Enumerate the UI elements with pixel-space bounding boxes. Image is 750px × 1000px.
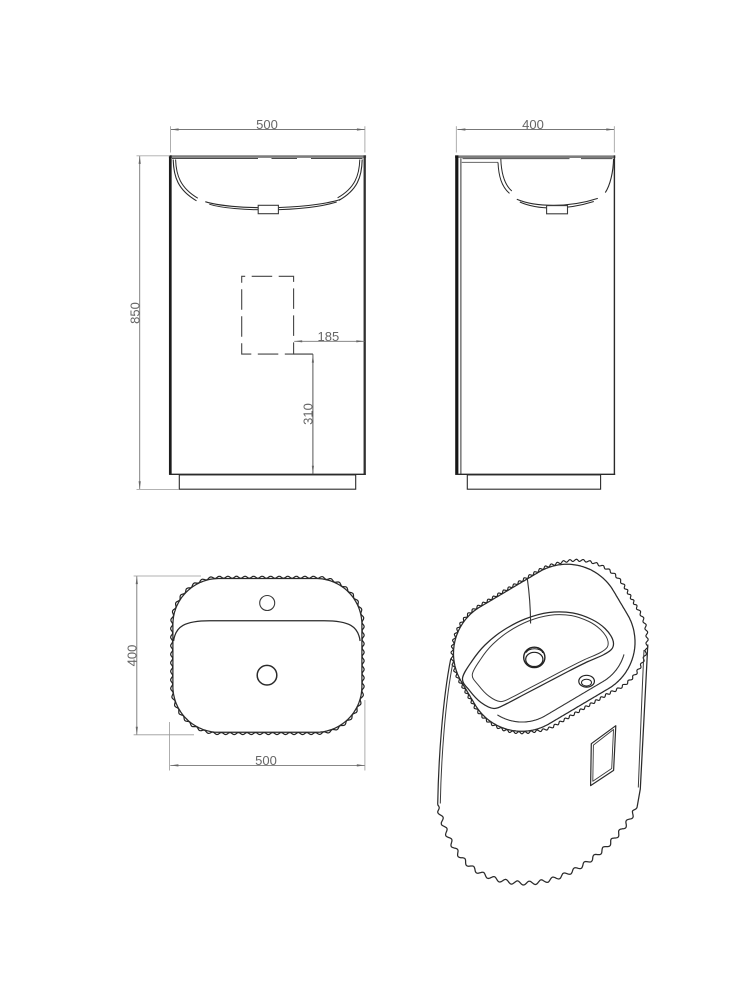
svg-text:185: 185 [318,329,340,344]
svg-text:850: 850 [127,302,142,324]
svg-text:400: 400 [522,117,544,132]
svg-text:310: 310 [301,403,316,425]
svg-text:500: 500 [255,753,277,768]
svg-text:500: 500 [256,117,278,132]
svg-text:400: 400 [125,645,140,667]
